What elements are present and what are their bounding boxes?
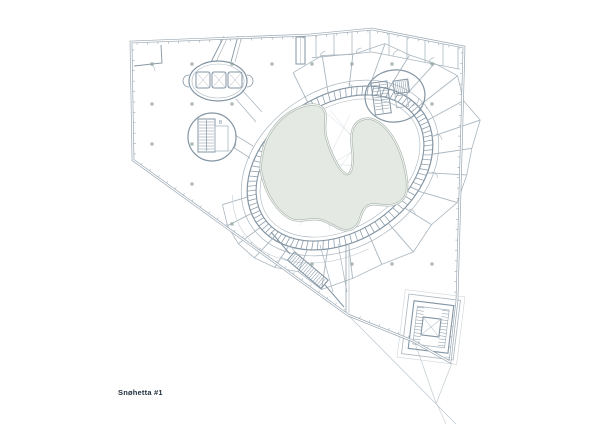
drawing-sheet: B Snøhetta #1	[0, 0, 600, 424]
organic-void	[261, 105, 407, 231]
drawing-label: Snøhetta #1	[118, 388, 163, 397]
organic-void-outline	[261, 105, 407, 231]
elevator-core	[183, 61, 253, 101]
svg-text:B: B	[219, 120, 223, 126]
stair-core-west: B	[188, 113, 236, 161]
floor-plan-drawing: B	[0, 0, 600, 424]
